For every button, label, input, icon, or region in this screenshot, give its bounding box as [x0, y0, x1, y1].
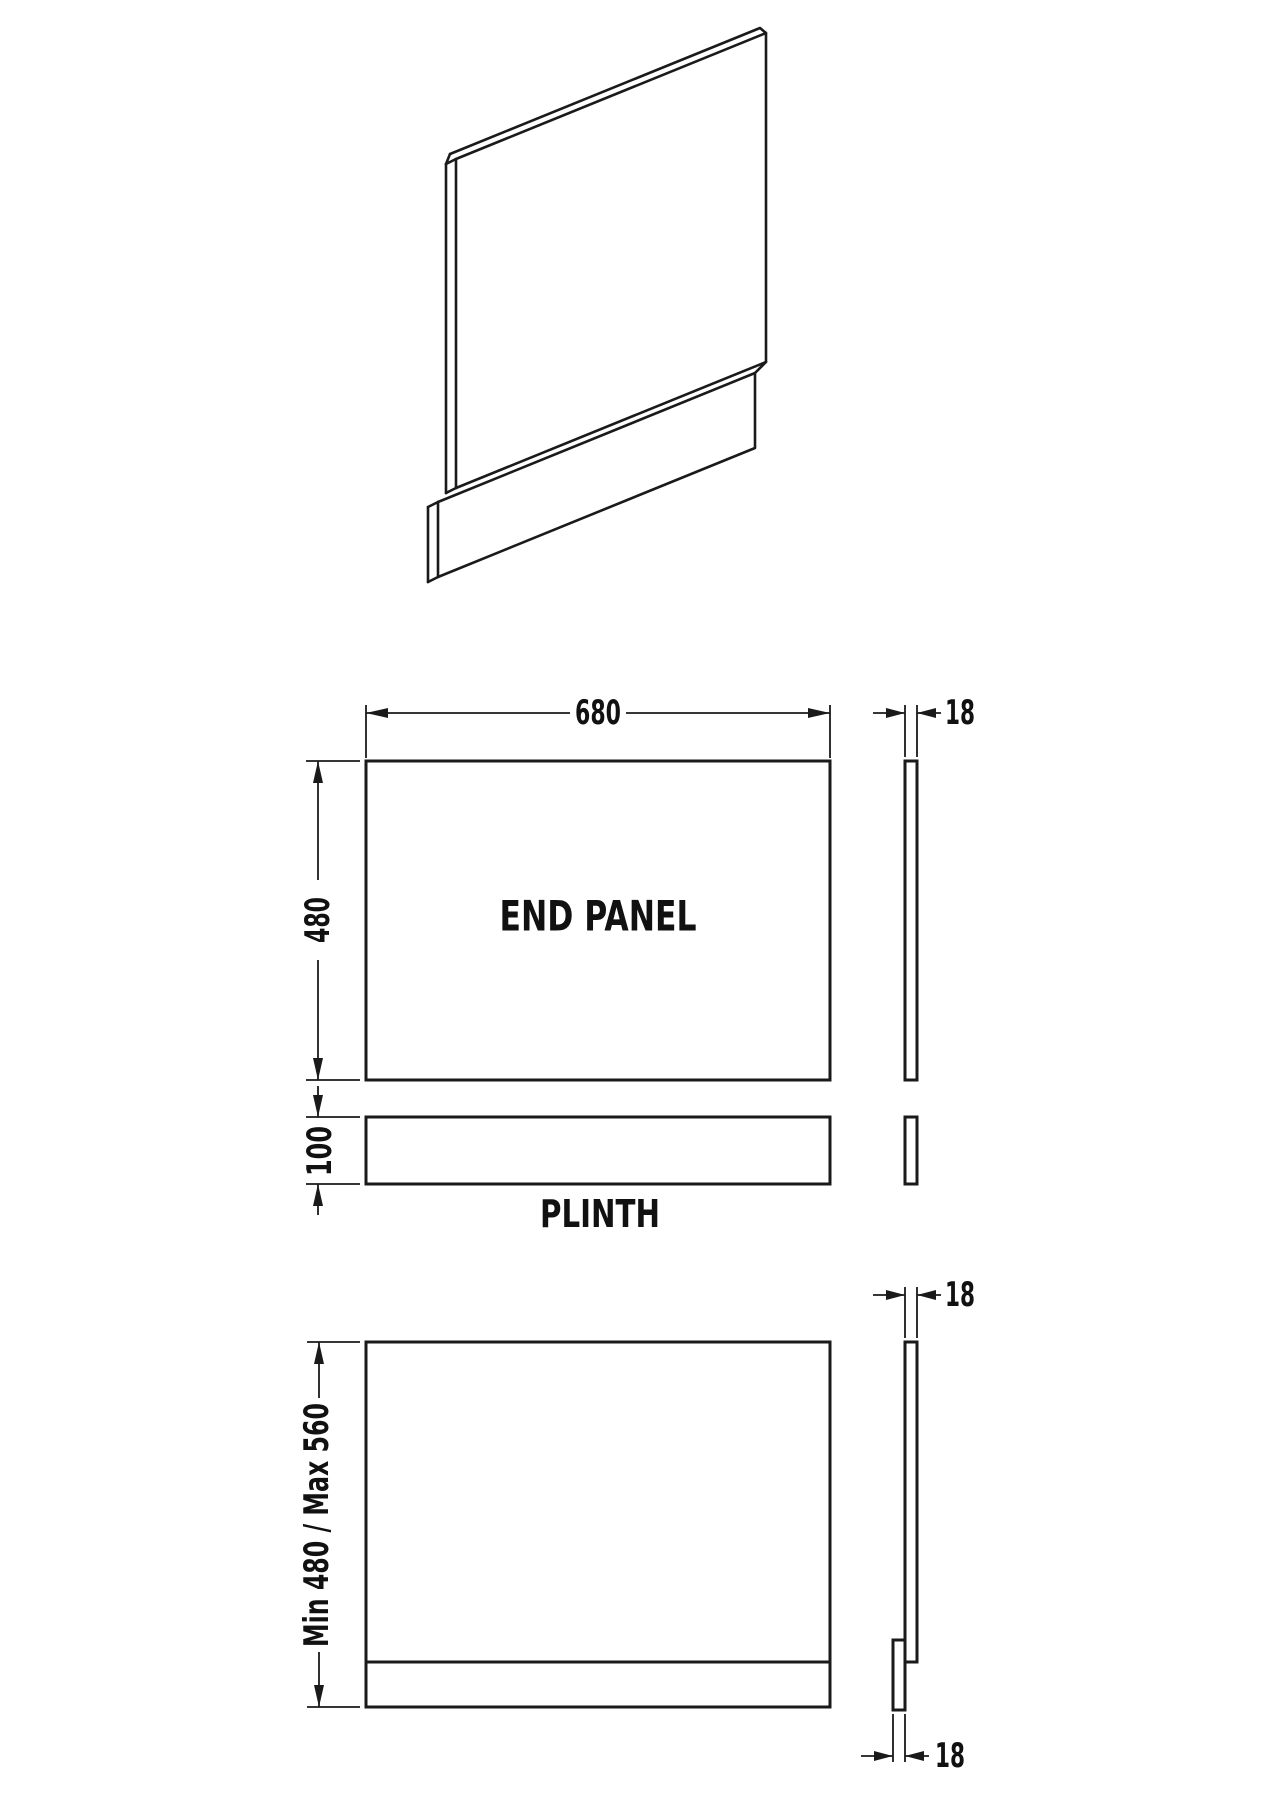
arrow-up-icon — [314, 1342, 324, 1364]
dimension-plinth-100: 100 — [300, 1086, 360, 1215]
dim-label-100: 100 — [300, 1126, 340, 1176]
arrow-right-icon — [886, 1290, 905, 1300]
isometric-view — [428, 28, 766, 582]
dim-label-480: 480 — [298, 897, 338, 943]
end-panel-label: END PANEL — [500, 892, 697, 941]
dimension-height-range: Min 480 / Max 560 — [297, 1342, 360, 1707]
dim-label-680: 680 — [575, 693, 621, 733]
dimension-thickness-18-bottom-top: 18 — [873, 1275, 975, 1338]
dimension-thickness-18-bottom: 18 — [861, 1714, 965, 1776]
dimension-thickness-18-middle: 18 — [873, 693, 975, 757]
arrow-down-icon — [314, 1685, 324, 1707]
side-view-plinth — [905, 1117, 917, 1184]
dim-label-min-max: Min 480 / Max 560 — [297, 1403, 337, 1647]
arrow-down-icon — [313, 1058, 323, 1080]
arrow-right-icon — [886, 708, 905, 718]
arrow-right-icon — [874, 1751, 893, 1761]
plinth-label: PLINTH — [540, 1192, 660, 1236]
arrow-left-icon — [366, 708, 388, 718]
dimension-width-680: 680 — [366, 693, 830, 758]
technical-drawing-page: END PANEL 680 480 18 PLINTH — [0, 0, 1272, 1800]
dimension-height-480: 480 — [298, 761, 360, 1080]
assembled-rect — [366, 1342, 830, 1707]
arrow-right-icon — [808, 708, 830, 718]
dim-label-18-bottom: 18 — [935, 1736, 965, 1776]
dim-label-18-top: 18 — [945, 1275, 975, 1315]
panel-side-strip — [905, 761, 917, 1080]
arrow-down-icon — [313, 1095, 323, 1117]
plinth-rect — [366, 1117, 830, 1184]
end-panel-technical-drawing: END PANEL 680 480 18 PLINTH — [0, 0, 1272, 1800]
arrow-left-icon — [905, 1751, 924, 1761]
arrow-up-icon — [313, 1184, 323, 1206]
assembled-panel-side-strip — [905, 1342, 917, 1662]
arrow-left-icon — [917, 708, 936, 718]
front-view: END PANEL — [366, 761, 830, 1080]
plinth-front-view: PLINTH — [366, 1117, 830, 1236]
plinth-side-strip — [905, 1117, 917, 1184]
dim-label-18-middle: 18 — [945, 693, 975, 733]
side-view-panel — [905, 761, 917, 1080]
assembled-plinth-side-strip — [893, 1640, 905, 1710]
side-view-assembled — [893, 1342, 917, 1710]
arrow-up-icon — [313, 761, 323, 783]
arrow-left-icon — [917, 1290, 936, 1300]
assembled-front-view — [366, 1342, 830, 1707]
